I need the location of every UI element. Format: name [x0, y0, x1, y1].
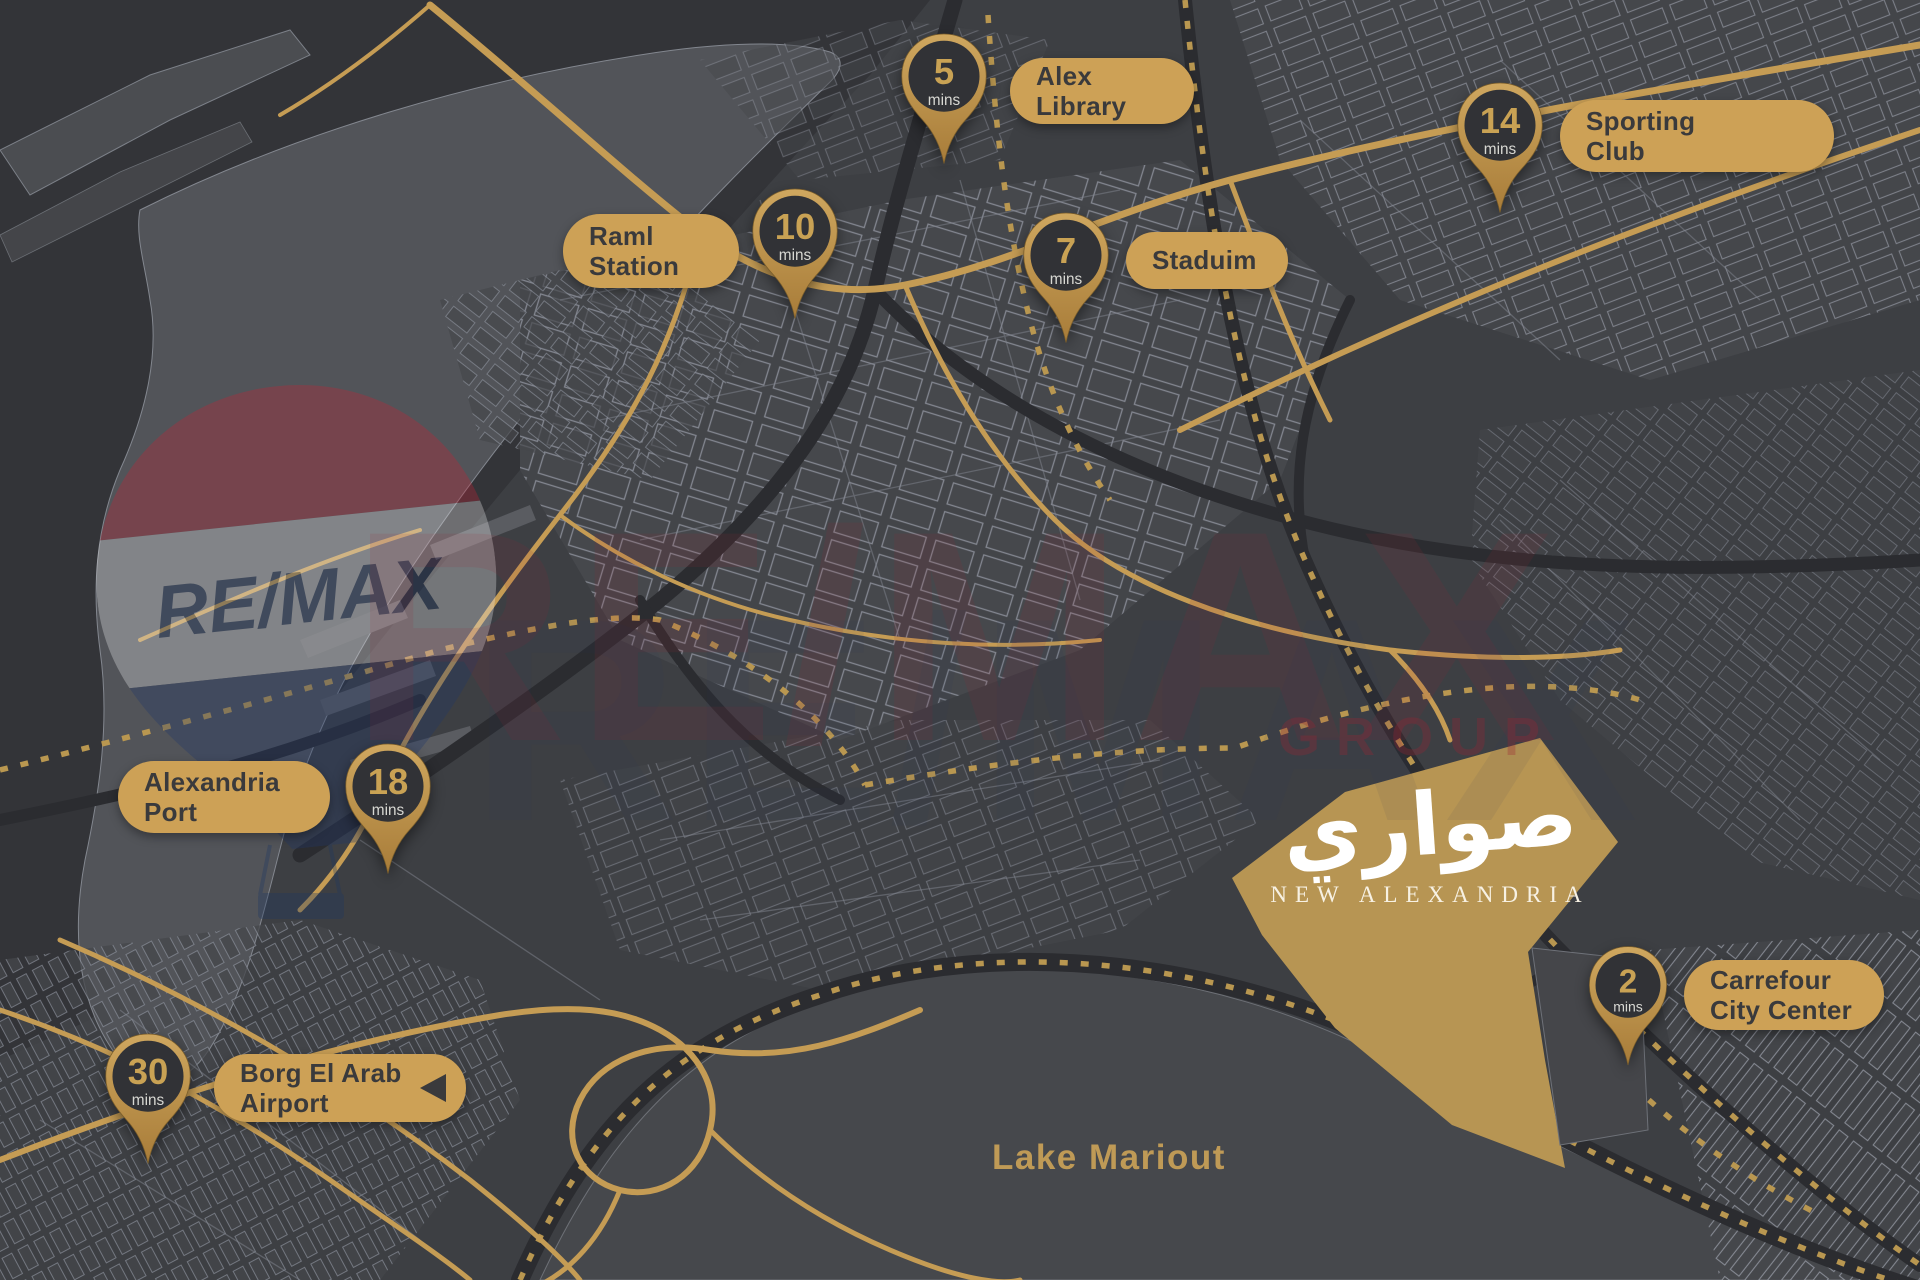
direction-arrow-icon: [420, 1074, 446, 1102]
time-pin-sporting-club: 14 mins: [1452, 80, 1548, 229]
pin-icon: 10 mins: [747, 186, 843, 335]
svg-text:30: 30: [128, 1051, 169, 1092]
svg-text:18: 18: [368, 761, 409, 802]
svg-text:mins: mins: [132, 1092, 165, 1109]
svg-text:mins: mins: [928, 92, 961, 109]
remax-group-watermark: GROUP: [1278, 707, 1556, 767]
location-label-text: Alexandria Port: [144, 767, 280, 827]
pin-icon: 18 mins: [340, 741, 436, 890]
project-logo: صواري NEW ALEXANDRIA: [1230, 782, 1630, 908]
svg-text:mins: mins: [372, 802, 405, 819]
lake-mariout-label: Lake Mariout: [992, 1138, 1226, 1178]
map-canvas: RE/MAX RE/MAX RE/MAX GROUP صواري NEW ALE…: [0, 0, 1920, 1280]
location-label-alex-library: Alex Library: [1010, 58, 1194, 124]
svg-text:mins: mins: [1613, 999, 1643, 1015]
location-label-text: Carrefour City Center: [1710, 965, 1852, 1025]
svg-text:5: 5: [934, 51, 954, 92]
time-pin-stadium: 7 mins: [1018, 210, 1114, 359]
time-pin-alexandria-port: 18 mins: [340, 741, 436, 890]
svg-text:7: 7: [1056, 230, 1076, 271]
time-pin-carrefour-city-center: 2 mins: [1584, 944, 1672, 1080]
location-label-borg-el-arab-airport: Borg El Arab Airport: [214, 1054, 466, 1122]
location-label-text: Borg El Arab Airport: [240, 1058, 402, 1118]
time-pin-alex-library: 5 mins: [896, 31, 992, 180]
location-label-text: Staduim: [1152, 245, 1257, 275]
pin-icon: 14 mins: [1452, 80, 1548, 229]
svg-text:2: 2: [1619, 963, 1638, 1000]
location-label-stadium: Staduim: [1126, 232, 1288, 289]
location-label-carrefour-city-center: Carrefour City Center: [1684, 960, 1884, 1030]
pin-icon: 30 mins: [100, 1031, 196, 1180]
location-label-text: Sporting Club: [1586, 106, 1695, 166]
time-pin-raml-station: 10 mins: [747, 186, 843, 335]
pin-icon: 7 mins: [1018, 210, 1114, 359]
svg-text:mins: mins: [1050, 271, 1083, 288]
location-label-alexandria-port: Alexandria Port: [118, 761, 330, 833]
project-logo-english: NEW ALEXANDRIA: [1230, 882, 1630, 908]
location-label-text: Raml Station: [589, 221, 679, 281]
pin-icon: 2 mins: [1584, 944, 1672, 1080]
location-label-text: Alex Library: [1036, 61, 1126, 121]
svg-text:14: 14: [1480, 100, 1521, 141]
pin-icon: 5 mins: [896, 31, 992, 180]
svg-text:mins: mins: [779, 247, 812, 264]
time-pin-borg-el-arab-airport: 30 mins: [100, 1031, 196, 1180]
svg-text:10: 10: [775, 206, 816, 247]
location-label-raml-station: Raml Station: [563, 214, 739, 288]
project-logo-arabic: صواري: [1227, 768, 1632, 882]
location-label-sporting-club: Sporting Club: [1560, 100, 1834, 172]
svg-text:mins: mins: [1484, 141, 1517, 158]
